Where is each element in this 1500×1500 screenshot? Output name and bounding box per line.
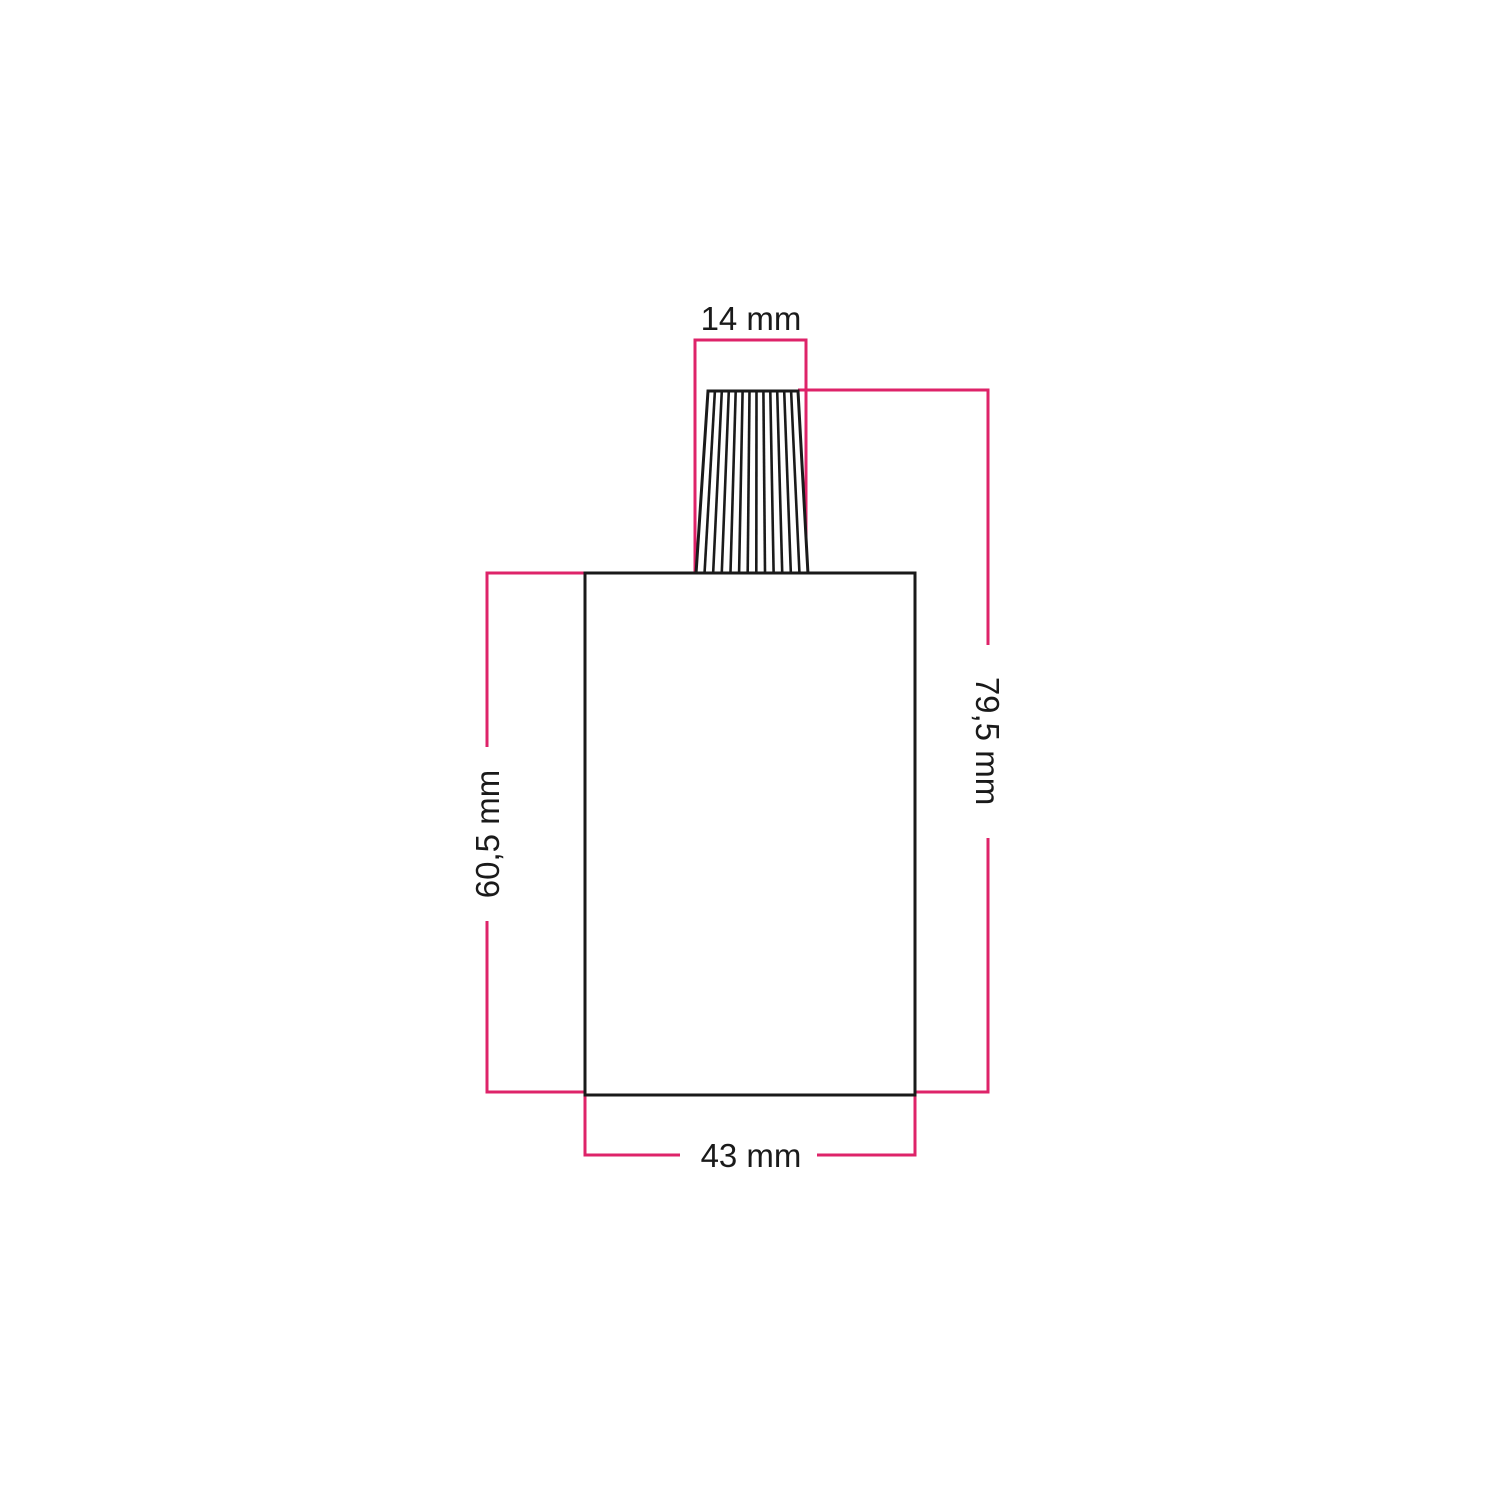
- lamp-holder-body: [585, 573, 915, 1095]
- cable-grip-cone: [696, 391, 808, 574]
- label-body-width: 43 mm: [701, 1137, 802, 1174]
- label-overall-height: 79,5 mm: [969, 677, 1006, 805]
- dimension-diagram: 14 mm 79,5 mm 60,5 mm 43 mm: [0, 0, 1500, 1500]
- label-cone-top-width: 14 mm: [701, 300, 802, 337]
- dimension-diagram-page: 14 mm 79,5 mm 60,5 mm 43 mm: [0, 0, 1500, 1500]
- label-body-height: 60,5 mm: [469, 770, 506, 898]
